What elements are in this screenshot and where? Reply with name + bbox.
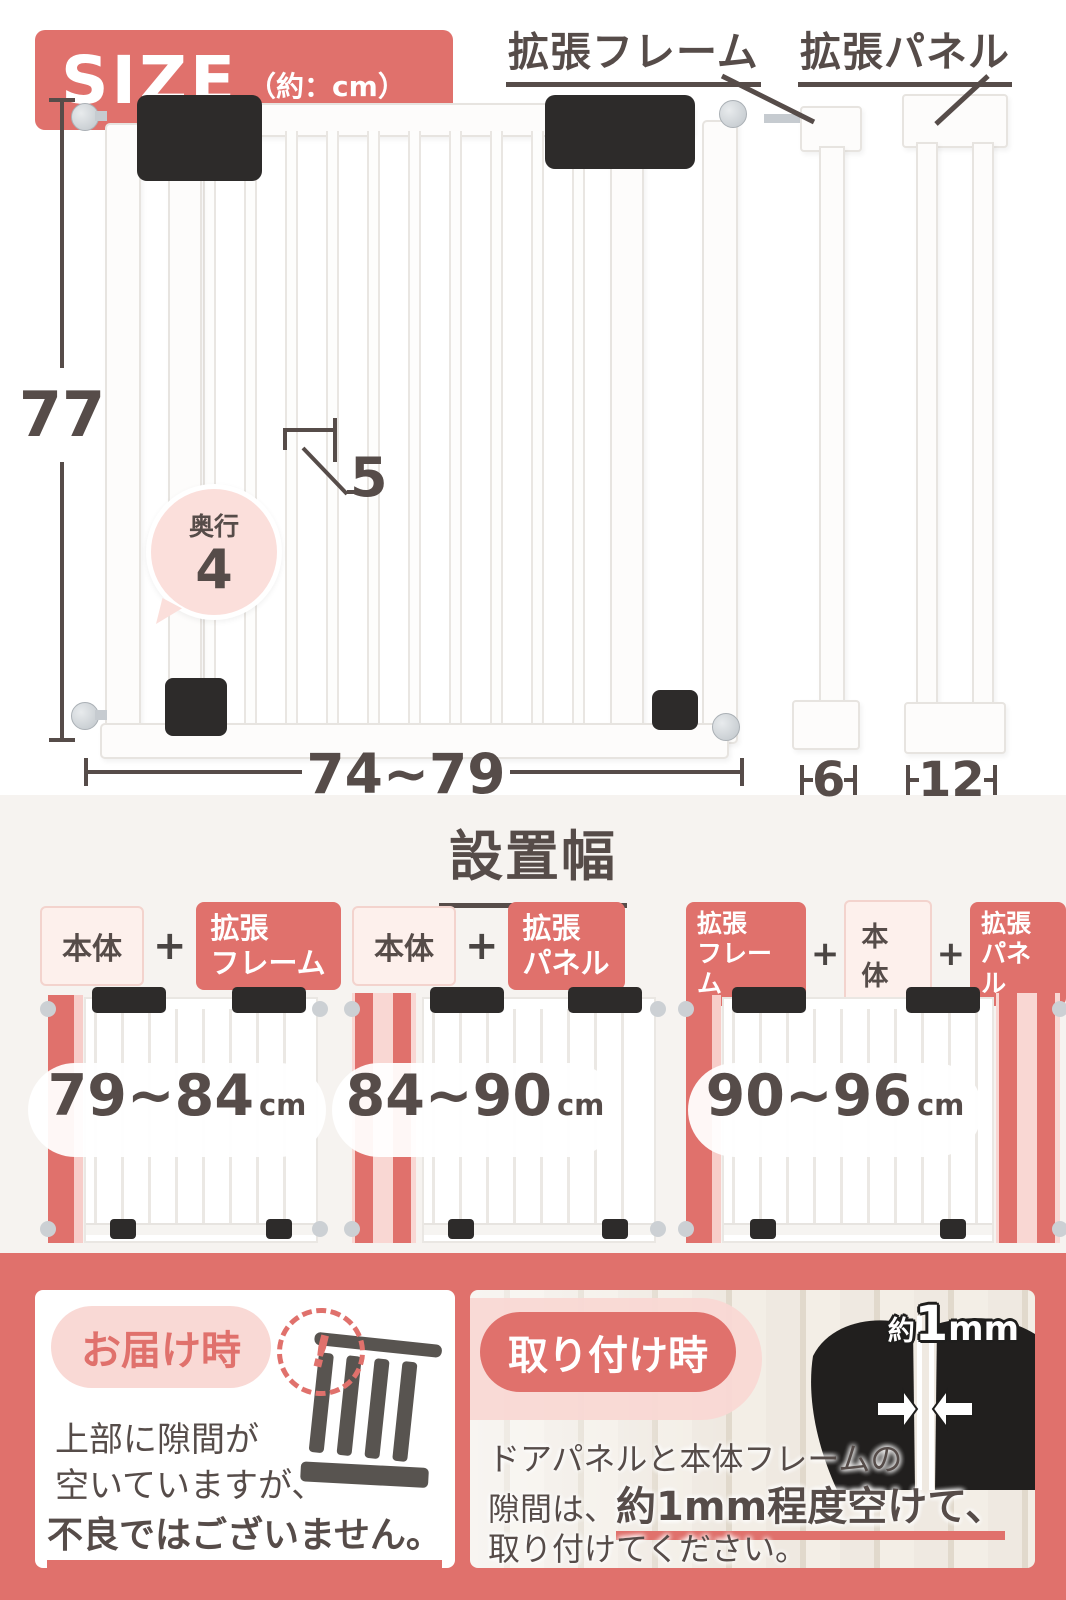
mini-foot-left — [750, 1219, 776, 1239]
badge-extension-panel: 拡張 パネル — [508, 902, 625, 990]
plus-sign: + — [811, 934, 840, 974]
depth-bubble: 奥行 4 — [146, 484, 282, 620]
dim-height-line-bottom — [60, 462, 64, 740]
main-gate-illustration — [85, 95, 745, 763]
install-note-card: 取り付け時 約1mm ドアパネルと本体フレームの 隙間は、約1mm程度空けて、 … — [470, 1290, 1035, 1568]
combo-3-unit: cm — [917, 1088, 964, 1122]
mini-disc — [344, 1221, 360, 1237]
badge-extension-frame: 拡張 フレーム — [196, 902, 341, 990]
mini-clamp-left — [92, 987, 166, 1013]
delivery-line-3: 不良ではございません。 — [47, 1506, 442, 1568]
mini-foot-left — [448, 1219, 474, 1239]
product-size-infographic: SIZE （約：cm） 拡張フレーム 拡張パネル 77 — [0, 0, 1066, 1600]
frame-bolt-stem — [764, 114, 802, 123]
dim-width-value: 74~79 — [306, 742, 506, 806]
bolt-bottom-right — [712, 713, 740, 741]
gap-unit: mm — [948, 1309, 1019, 1349]
combo-1-gate: 79~84 cm — [48, 985, 320, 1243]
combo-2-badges: 本体 + 拡張 パネル — [352, 902, 625, 990]
installation-width-title-wrap: 設置幅 — [0, 812, 1066, 908]
delivery-note-card: お届け時 ! 上部に隙間が 空いていますが、 不良ではございません。 — [35, 1290, 455, 1568]
combo-2-unit: cm — [557, 1088, 604, 1122]
gate-bars — [203, 131, 605, 723]
frame-bar — [819, 146, 845, 706]
combo-3-range: 90~96 — [706, 1063, 912, 1129]
notes-section: お届け時 ! 上部に隙間が 空いていますが、 不良ではございません。 取り付け時 — [0, 1253, 1066, 1600]
combo-1-unit: cm — [259, 1088, 306, 1122]
gap-size-label: 約1mm — [888, 1296, 1019, 1352]
gate-foot-right — [652, 690, 698, 730]
mini-foot-right — [602, 1219, 628, 1239]
install-title-pill: 取り付け時 — [480, 1312, 736, 1392]
dim-panel-tick-right — [993, 765, 997, 795]
dim-height-cap-bottom — [49, 738, 75, 742]
combo-1-range-pill: 79~84 cm — [28, 1063, 326, 1157]
mini-clamp-right — [906, 987, 980, 1013]
mini-disc — [40, 1221, 56, 1237]
mini-disc — [678, 1221, 694, 1237]
mini-disc — [1052, 1001, 1066, 1017]
install-line-2-pre: 隙間は、 — [488, 1490, 616, 1528]
panel-foot — [904, 702, 1006, 754]
combo-3-gate: 90~96 cm — [686, 985, 1060, 1243]
dim-frame-width: 6 — [800, 752, 857, 808]
installation-width-title: 設置幅 — [439, 812, 627, 908]
delivery-line-2: 空いていますが、 — [55, 1458, 325, 1507]
dim-width-line-right — [510, 770, 740, 774]
label-extension-panel: 拡張パネル — [798, 18, 1012, 87]
dim-frame-tick-left — [800, 765, 804, 795]
mini-disc — [312, 1001, 328, 1017]
combo-1-range: 79~84 — [48, 1063, 254, 1129]
badge-main-unit: 本体 — [40, 906, 144, 986]
bolt-stem-bottom-left — [95, 710, 107, 720]
panel-top-cap — [902, 94, 1008, 148]
bolt-stem-top-left — [95, 111, 107, 121]
gate-inner-left-post — [168, 111, 202, 731]
badge-main-unit: 本体 — [352, 906, 456, 986]
mini-clamp-right — [232, 987, 306, 1013]
mini-disc — [40, 1001, 56, 1017]
gap-approx: 約 — [888, 1316, 915, 1347]
mini-disc — [650, 1221, 666, 1237]
dim-width-cap-right — [740, 758, 744, 786]
dim-frame-tick-right — [853, 765, 857, 795]
mini-clamp-right — [568, 987, 642, 1013]
combo-2-range-pill: 84~90 cm — [332, 1063, 618, 1157]
mini-disc — [650, 1001, 666, 1017]
label-extension-frame: 拡張フレーム — [506, 18, 761, 87]
dim-frame-value: 6 — [812, 752, 845, 808]
gate-inner-right-post — [610, 105, 644, 729]
dim-panel-tick-left — [906, 765, 910, 795]
combo-2-gate: 84~90 cm — [352, 985, 658, 1243]
dim-height-value: 77 — [18, 378, 106, 451]
gate-clamp-top-right — [545, 95, 695, 169]
combo-2-range: 84~90 — [346, 1063, 552, 1129]
panel-bar-right — [972, 142, 994, 708]
mini-disc — [344, 1001, 360, 1017]
depth-value: 4 — [195, 543, 233, 597]
delivery-title-pill: お届け時 — [51, 1306, 271, 1388]
bolt-top-right — [719, 100, 747, 128]
combo-1-badges: 本体 + 拡張 フレーム — [40, 902, 341, 990]
mini-clamp-left — [732, 987, 806, 1013]
mini-foot-right — [940, 1219, 966, 1239]
highlight-extension-panel — [996, 993, 1060, 1243]
frame-foot — [792, 700, 860, 750]
dim-panel-value: 12 — [918, 752, 985, 808]
mini-foot-right — [266, 1219, 292, 1239]
gate-left-post — [105, 123, 141, 745]
panel-bar-left — [916, 142, 938, 708]
dim-width-line-left — [88, 770, 302, 774]
dim-gap-value: 5 — [350, 446, 388, 509]
mini-clamp-left — [430, 987, 504, 1013]
install-line-3: 取り付けてください。 — [488, 1524, 807, 1568]
gate-right-post — [702, 120, 738, 744]
mini-disc — [678, 1001, 694, 1017]
delivery-line-1: 上部に隙間が — [55, 1412, 259, 1461]
gate-clamp-top-left — [137, 95, 262, 181]
dim-height-line-top — [60, 100, 64, 368]
mini-foot-left — [110, 1219, 136, 1239]
combo-3-range-pill: 90~96 cm — [688, 1063, 982, 1157]
plus-sign: + — [153, 923, 187, 969]
mini-disc — [1052, 1221, 1066, 1237]
gate-foot-left — [165, 678, 227, 736]
dim-panel-width: 12 — [906, 752, 997, 808]
gap-value: 1 — [915, 1296, 948, 1352]
plus-sign: + — [465, 923, 499, 969]
plus-sign: + — [937, 934, 966, 974]
mini-disc — [312, 1221, 328, 1237]
